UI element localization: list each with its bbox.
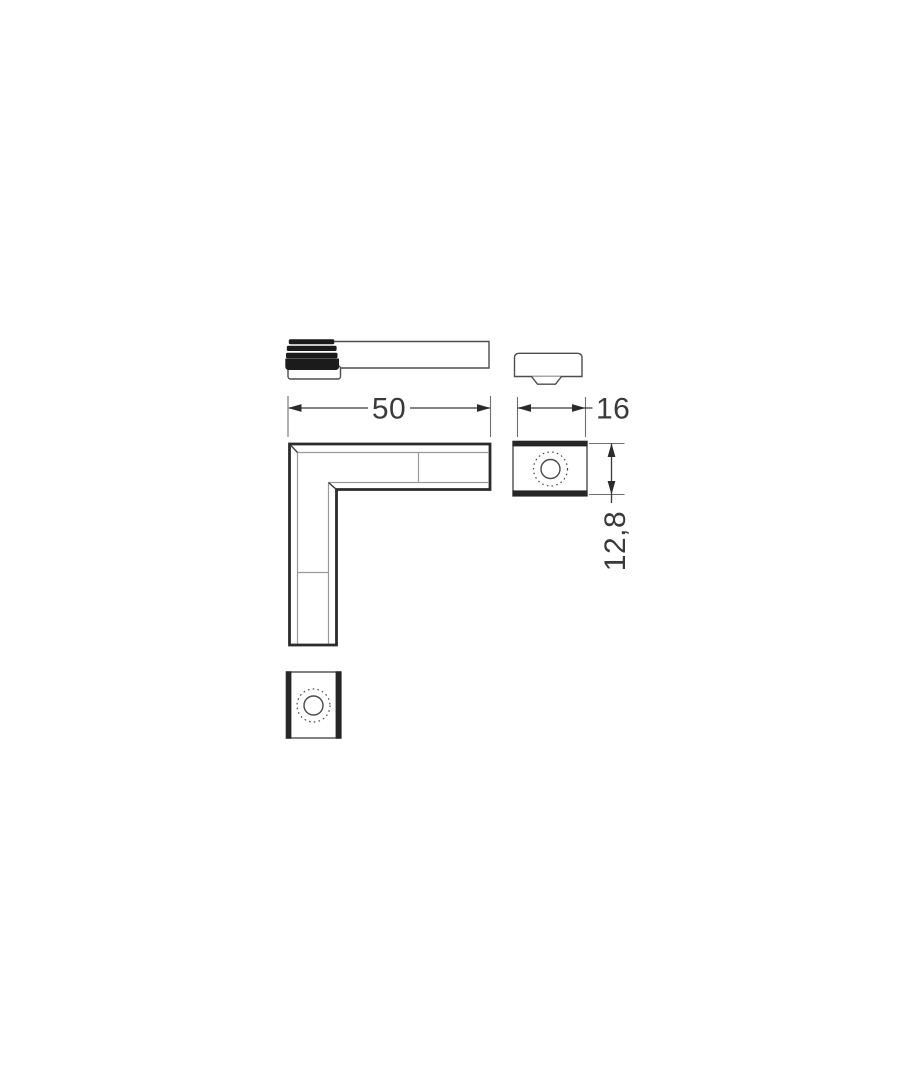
cross-section-end-bottom — [286, 671, 341, 738]
width-dimension-value: 16 — [596, 393, 630, 426]
end-cap-rib-2 — [287, 346, 337, 351]
cap-profile-outline — [515, 353, 583, 376]
corner-connector-front-view — [290, 444, 491, 645]
width-arrow-right — [572, 404, 586, 412]
section-bottom-right-face — [336, 671, 342, 738]
section-right-outline — [513, 442, 587, 497]
corner-connector-drawing: 50 16 — [0, 0, 910, 1080]
connector-cap-side-view — [515, 353, 583, 384]
cap-profile-notch — [532, 377, 562, 385]
end-cap-rib-3 — [286, 353, 338, 358]
height-extension-lines — [589, 444, 625, 495]
width-extension-lines — [518, 397, 586, 437]
height-arrow-top — [608, 444, 616, 458]
profile-assembly-side-view — [285, 339, 489, 379]
length-arrow-right — [477, 404, 491, 412]
section-right-top-face — [513, 441, 588, 447]
cross-section-end-right — [513, 441, 588, 496]
end-cap-base — [285, 359, 339, 371]
dimension-length: 50 — [288, 393, 491, 438]
length-arrow-left — [288, 404, 302, 412]
width-arrow-left — [518, 404, 532, 412]
section-bottom-outline — [287, 672, 342, 738]
height-arrow-bottom — [608, 481, 616, 495]
technical-drawing-canvas: 50 16 — [0, 0, 910, 1080]
section-bottom-left-face — [286, 671, 292, 738]
end-cap-rib-1 — [289, 339, 335, 344]
dimension-height: 12,8 — [589, 444, 632, 572]
corner-outer-contour — [290, 444, 491, 645]
height-dimension-value: 12,8 — [599, 511, 632, 571]
length-dimension-value: 50 — [372, 393, 406, 426]
section-right-bottom-face — [513, 490, 588, 496]
profile-body-outline — [330, 342, 489, 369]
dimension-width: 16 — [518, 393, 631, 438]
